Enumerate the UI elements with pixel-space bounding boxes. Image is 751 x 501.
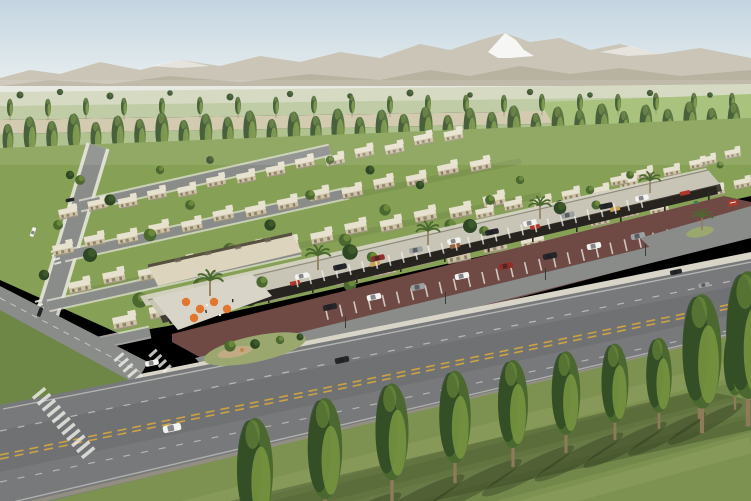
patio-table [219, 314, 221, 316]
tree [83, 248, 97, 262]
tree [586, 186, 594, 194]
tree [104, 194, 115, 205]
tree [416, 181, 424, 189]
tree [554, 202, 567, 215]
tree [66, 171, 74, 179]
umbrella [223, 305, 231, 313]
tree [305, 190, 315, 200]
car [145, 359, 159, 367]
tree [516, 176, 524, 184]
tree [39, 270, 50, 281]
atmospheric-haze [0, 80, 751, 165]
rendering-canvas [0, 0, 751, 501]
tree [626, 171, 634, 179]
tree [185, 200, 195, 210]
wayfinding-sign [694, 201, 698, 204]
umbrella [196, 305, 204, 313]
tree [53, 220, 63, 230]
umbrella [190, 314, 198, 322]
tree [264, 219, 275, 230]
aerial-rendering [0, 0, 751, 501]
tree [591, 200, 600, 209]
tree [144, 229, 157, 242]
tree [75, 175, 85, 185]
tree [342, 244, 357, 259]
tree [365, 165, 374, 174]
umbrella [210, 298, 218, 306]
tree [485, 195, 495, 205]
tree [256, 276, 267, 287]
tree [156, 166, 164, 174]
patio-table [206, 304, 208, 306]
tree [463, 219, 477, 233]
tree [379, 204, 390, 215]
pedestrian [232, 299, 233, 302]
umbrella [182, 298, 190, 306]
